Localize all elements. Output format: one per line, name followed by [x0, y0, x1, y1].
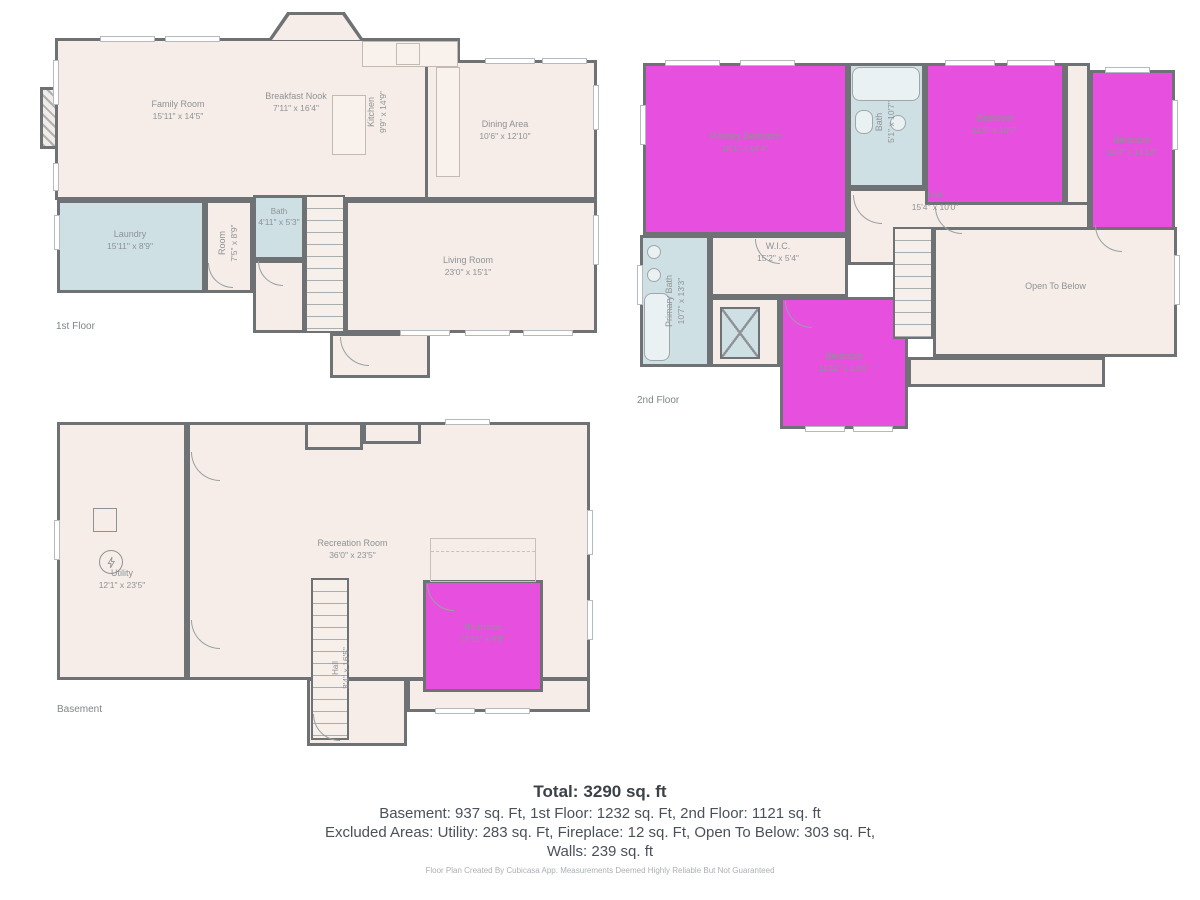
toilet	[855, 110, 873, 134]
window	[740, 60, 795, 66]
window	[665, 60, 720, 66]
label-utility: Utility 12'1" x 23'5"	[62, 568, 182, 591]
label-dining-area: Dining Area 10'6" x 12'10"	[445, 119, 565, 142]
total-label: Total:	[533, 782, 578, 801]
bed-outline	[430, 538, 536, 582]
window	[54, 520, 60, 560]
sink	[647, 245, 661, 259]
floor-label-basement: Basement	[57, 704, 102, 715]
floor-label-1st: 1st Floor	[56, 321, 95, 332]
label-primary-bedroom: Primary Bedroom 14'1" x 14'4"	[685, 131, 805, 154]
window	[54, 215, 60, 250]
label-family-room: Family Room 15'11" x 14'5"	[118, 99, 238, 122]
window	[587, 600, 593, 640]
room-closet-strip	[1065, 63, 1090, 205]
room-utility	[57, 422, 187, 680]
label-wic: W.I.C. 15'2" x 5'4"	[718, 241, 838, 264]
window	[593, 215, 599, 265]
floorplan-2nd-floor: Primary Bedroom 14'1" x 14'4" Bath 5'1" …	[635, 55, 1183, 440]
shower	[720, 307, 760, 359]
label-bedroom-4: Bedroom 11'11" x 13'6"	[784, 351, 904, 374]
window	[640, 105, 646, 145]
window	[1174, 255, 1180, 305]
window	[1007, 60, 1055, 66]
electrical-panel	[93, 508, 117, 532]
label-breakfast-nook: Breakfast Nook 7'11" x 16'4"	[236, 91, 356, 114]
floorplan-1st-floor: Family Room 15'11" x 14'5" Breakfast Noo…	[40, 15, 600, 380]
kitchen-stove	[396, 43, 420, 65]
label-primary-bath: Primary Bath 10'7" x 13'3"	[664, 246, 686, 356]
window	[1105, 67, 1150, 73]
area-summary: Total:3290 sq. ft Basement: 937 sq. Ft, …	[0, 782, 1200, 861]
stairs-2nd-floor	[893, 227, 933, 339]
excluded-areas: Excluded Areas: Utility: 283 sq. Ft, Fir…	[0, 823, 1200, 842]
label-laundry: Laundry 15'11" x 8'9"	[70, 229, 190, 252]
window	[445, 419, 490, 425]
bay-window-floor	[272, 15, 360, 40]
disclaimer: Floor Plan Created By Cubicasa App. Meas…	[0, 866, 1200, 875]
window	[400, 330, 450, 336]
label-basement-bedroom: Bedroom 11'11" x 9'6"	[423, 622, 543, 645]
label-hall-2nd: Hall 15'4" x 10'0"	[875, 190, 995, 213]
window	[435, 708, 475, 714]
bay-window-outline	[268, 12, 364, 40]
label-small-room: Room 7'5" x 8'9"	[217, 188, 239, 298]
label-open-to-below: Open To Below	[993, 281, 1118, 293]
floorplan-basement: Utility 12'1" x 23'5" Recreation Room 36…	[55, 420, 595, 760]
label-bedroom-2: Bedroom 11'5" x 10'7"	[935, 113, 1055, 136]
window	[853, 426, 893, 432]
label-recreation-room: Recreation Room 36'0" x 23'5"	[280, 538, 425, 561]
label-kitchen: Kitchen 9'9" x 14'9"	[366, 57, 388, 167]
label-bedroom-3: Bedroom 10'4" x 14'10"	[1072, 135, 1192, 158]
window	[523, 330, 573, 336]
floor-areas: Basement: 937 sq. Ft, 1st Floor: 1232 sq…	[0, 804, 1200, 823]
window	[53, 60, 59, 105]
total-area: Total:3290 sq. ft	[0, 782, 1200, 802]
window	[465, 330, 510, 336]
window	[805, 426, 845, 432]
sink	[647, 268, 661, 282]
window	[945, 60, 995, 66]
window	[593, 85, 599, 130]
room-basement-nook-1	[305, 422, 363, 450]
floor-label-2nd: 2nd Floor	[637, 395, 679, 406]
window	[587, 510, 593, 555]
room-open-strip	[908, 357, 1105, 387]
window	[53, 163, 59, 191]
walls-area: Walls: 239 sq. ft	[0, 842, 1200, 861]
window	[485, 58, 535, 64]
label-bath-1st: Bath 4'11" x 5'3"	[238, 207, 320, 228]
window	[637, 265, 643, 305]
label-bath-2nd: Bath 5'1" x 10'7"	[874, 67, 896, 177]
window	[485, 708, 530, 714]
window	[542, 58, 587, 64]
window	[100, 36, 155, 42]
label-living-room: Living Room 23'0" x 15'1"	[408, 255, 528, 278]
total-value: 3290 sq. ft	[583, 782, 666, 801]
room-basement-nook-2	[363, 422, 421, 444]
label-basement-hall: Hall 3'4" x 16'5"	[331, 613, 353, 723]
window	[165, 36, 220, 42]
